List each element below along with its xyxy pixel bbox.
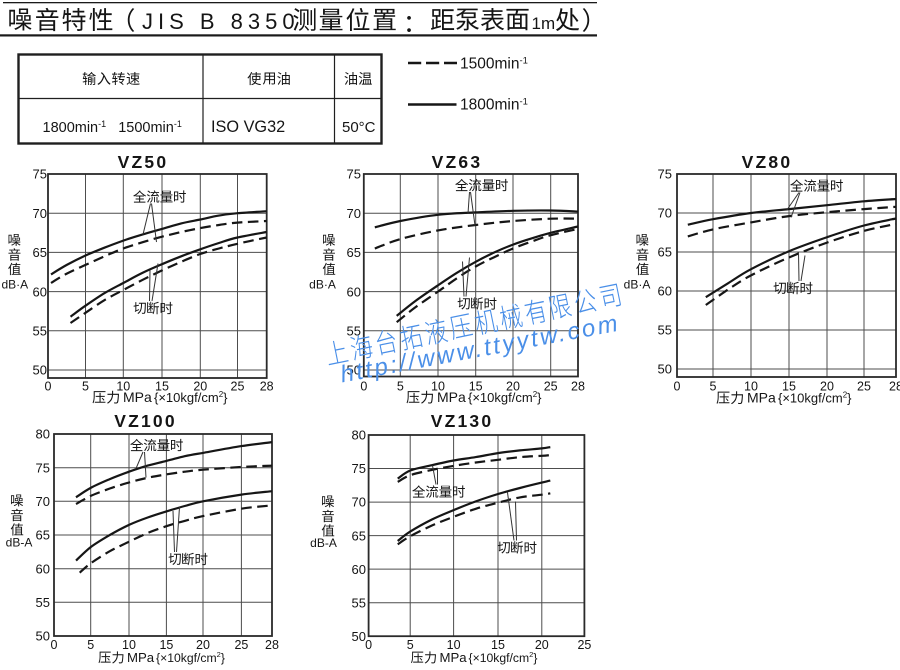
svg-text:MPa: MPa <box>127 650 155 665</box>
svg-text:20: 20 <box>196 638 210 652</box>
svg-text:{×10kgf/cm2}: {×10kgf/cm2} <box>156 650 225 665</box>
svg-text:70: 70 <box>33 206 47 221</box>
svg-text:65: 65 <box>347 245 361 260</box>
svg-text:65: 65 <box>33 245 47 260</box>
svg-text:15: 15 <box>491 638 505 652</box>
svg-text:{×10kgf/cm2}: {×10kgf/cm2} <box>469 650 538 665</box>
svg-text:{×10kgf/cm2}: {×10kgf/cm2} <box>778 391 852 406</box>
svg-text:0: 0 <box>51 638 58 652</box>
svg-text:0: 0 <box>365 638 372 652</box>
svg-text:28: 28 <box>889 380 900 394</box>
svg-text:75: 75 <box>33 167 47 182</box>
svg-text:60: 60 <box>658 284 672 299</box>
svg-text:5: 5 <box>87 638 94 652</box>
svg-text:15: 15 <box>159 638 173 652</box>
svg-text:dB·A: dB·A <box>624 278 651 292</box>
svg-text:75: 75 <box>347 167 361 182</box>
svg-text:60: 60 <box>33 284 47 299</box>
svg-text:VZ100: VZ100 <box>114 411 177 431</box>
svg-text:75: 75 <box>352 461 366 476</box>
svg-text:50: 50 <box>33 363 47 378</box>
svg-text:55: 55 <box>33 324 47 339</box>
svg-text:VZ130: VZ130 <box>431 411 494 431</box>
svg-text:MPa: MPa <box>437 389 466 405</box>
svg-text:60: 60 <box>352 562 366 577</box>
svg-text:50: 50 <box>352 629 366 644</box>
svg-text:55: 55 <box>352 595 366 610</box>
svg-text:70: 70 <box>658 206 672 221</box>
svg-text:65: 65 <box>352 528 366 543</box>
svg-text:80: 80 <box>352 428 366 443</box>
svg-text:MPa: MPa <box>747 390 776 406</box>
svg-text:VZ80: VZ80 <box>742 152 793 172</box>
svg-text:25: 25 <box>577 638 591 652</box>
svg-text:28: 28 <box>265 638 279 652</box>
svg-text:VZ63: VZ63 <box>432 152 483 172</box>
svg-text:dB-A: dB-A <box>6 536 33 550</box>
svg-text:ISO VG32: ISO VG32 <box>211 118 285 136</box>
svg-text:28: 28 <box>571 380 585 394</box>
svg-text:50°C: 50°C <box>342 119 376 136</box>
svg-text:65: 65 <box>658 245 672 260</box>
svg-text:70: 70 <box>352 495 366 510</box>
svg-text:0: 0 <box>45 380 52 394</box>
svg-text:65: 65 <box>36 528 50 543</box>
svg-text:50: 50 <box>36 629 50 644</box>
svg-text:55: 55 <box>658 323 672 338</box>
svg-text:1800min-1 1500min-1: 1800min-1 1500min-1 <box>43 119 182 136</box>
svg-text:{×10kgf/cm2}: {×10kgf/cm2} <box>468 390 542 405</box>
svg-text:25: 25 <box>544 380 558 394</box>
svg-text:80: 80 <box>36 427 50 442</box>
svg-text:0: 0 <box>674 380 681 394</box>
svg-text:MPa: MPa <box>440 650 468 665</box>
svg-text:1800min-1: 1800min-1 <box>460 97 528 114</box>
svg-text:20: 20 <box>535 638 549 652</box>
svg-text:{×10kgf/cm2}: {×10kgf/cm2} <box>154 390 228 405</box>
svg-text:MPa: MPa <box>123 389 152 405</box>
svg-text:5: 5 <box>82 380 89 394</box>
svg-text:50: 50 <box>658 362 672 377</box>
svg-text:28: 28 <box>260 380 274 394</box>
svg-text:25: 25 <box>857 380 871 394</box>
svg-text:25: 25 <box>231 380 245 394</box>
svg-text:25: 25 <box>234 638 248 652</box>
svg-text:dB-A: dB-A <box>310 536 337 550</box>
svg-text:60: 60 <box>347 284 361 299</box>
svg-text:1500min-1: 1500min-1 <box>460 56 528 73</box>
svg-text:55: 55 <box>36 595 50 610</box>
svg-text:JIS B 8350: JIS B 8350 <box>142 9 300 34</box>
svg-text:dB·A: dB·A <box>1 278 28 292</box>
svg-text:75: 75 <box>36 460 50 475</box>
svg-text:5: 5 <box>710 380 717 394</box>
svg-text:70: 70 <box>347 206 361 221</box>
svg-text:5: 5 <box>407 638 414 652</box>
svg-text:60: 60 <box>36 561 50 576</box>
svg-text:5: 5 <box>397 380 404 394</box>
svg-text:dB·A: dB·A <box>309 278 336 292</box>
svg-text:VZ50: VZ50 <box>118 152 169 172</box>
svg-text:75: 75 <box>658 167 672 182</box>
svg-text:70: 70 <box>36 494 50 509</box>
svg-text:1m: 1m <box>532 14 556 33</box>
